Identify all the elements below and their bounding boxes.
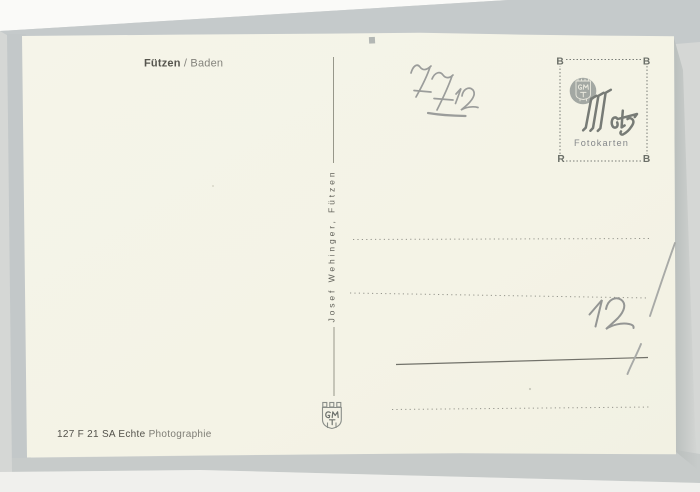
svg-text:127 F 21 SA Echte Photographie: 127 F 21 SA Echte Photographie	[57, 429, 212, 440]
svg-text:B: B	[556, 57, 563, 68]
svg-text:B: B	[643, 154, 650, 165]
svg-text:Fotokarten: Fotokarten	[574, 138, 629, 148]
svg-text:Josef Wehinger, Fützen: Josef Wehinger, Fützen	[327, 170, 337, 323]
svg-text:Fützen / Baden: Fützen / Baden	[144, 58, 223, 70]
svg-text:B: B	[643, 57, 650, 68]
svg-text:R: R	[557, 154, 565, 165]
